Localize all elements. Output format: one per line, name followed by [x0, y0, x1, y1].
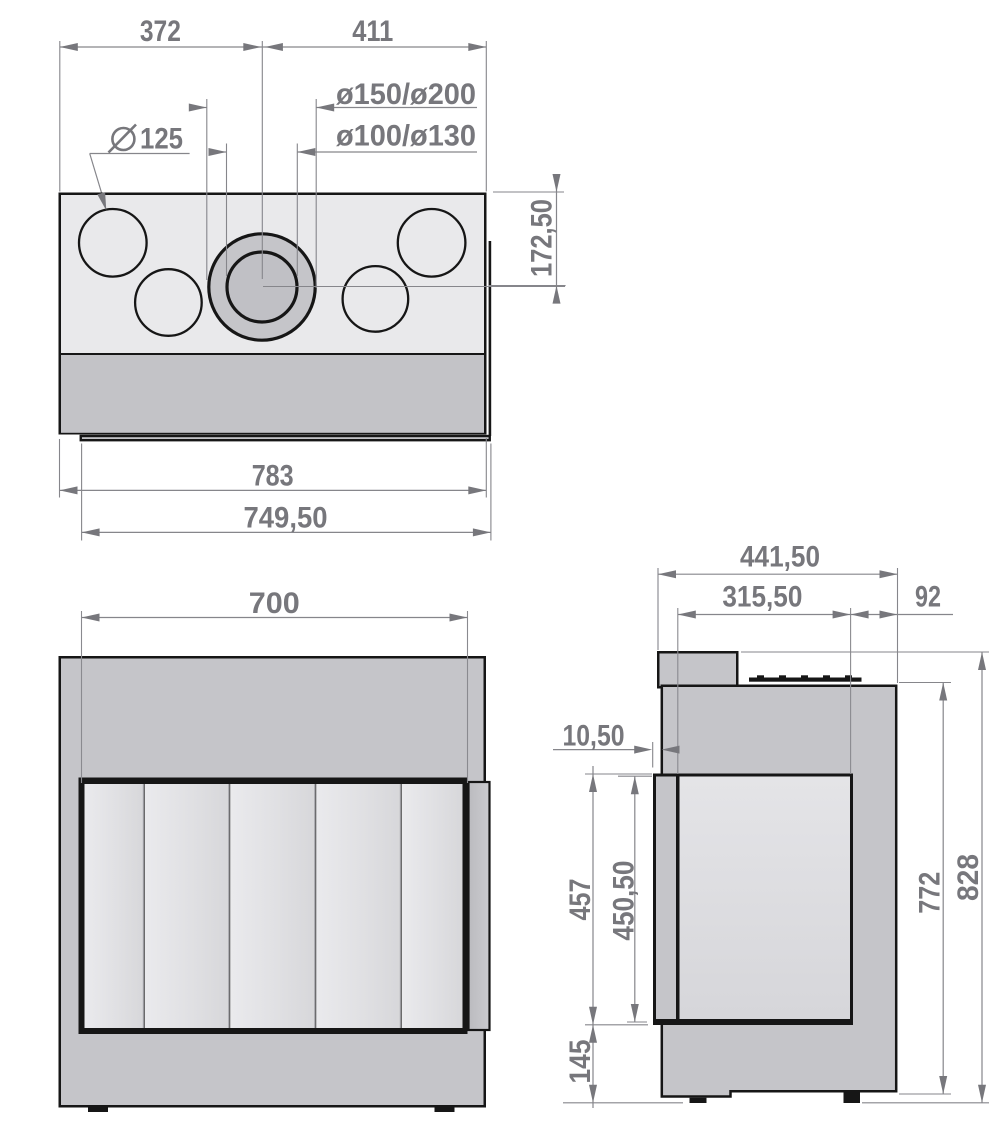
svg-text:441,50: 441,50 [740, 540, 820, 573]
svg-text:411: 411 [352, 15, 393, 48]
svg-text:372: 372 [140, 15, 181, 48]
svg-text:749,50: 749,50 [244, 502, 328, 535]
svg-text:145: 145 [564, 1040, 597, 1084]
svg-text:92: 92 [915, 581, 941, 614]
svg-text:ø150/ø200: ø150/ø200 [336, 78, 476, 111]
svg-text:172,50: 172,50 [526, 199, 559, 277]
svg-text:ø100/ø130: ø100/ø130 [336, 120, 476, 153]
svg-text:450,50: 450,50 [608, 861, 641, 941]
svg-text:457: 457 [564, 879, 597, 921]
svg-text:10,50: 10,50 [563, 719, 625, 752]
svg-text:772: 772 [914, 872, 947, 914]
svg-text:700: 700 [249, 587, 300, 620]
svg-text:315,50: 315,50 [722, 581, 802, 614]
svg-text:125: 125 [140, 123, 183, 156]
svg-text:783: 783 [252, 460, 294, 493]
svg-text:828: 828 [952, 854, 985, 901]
